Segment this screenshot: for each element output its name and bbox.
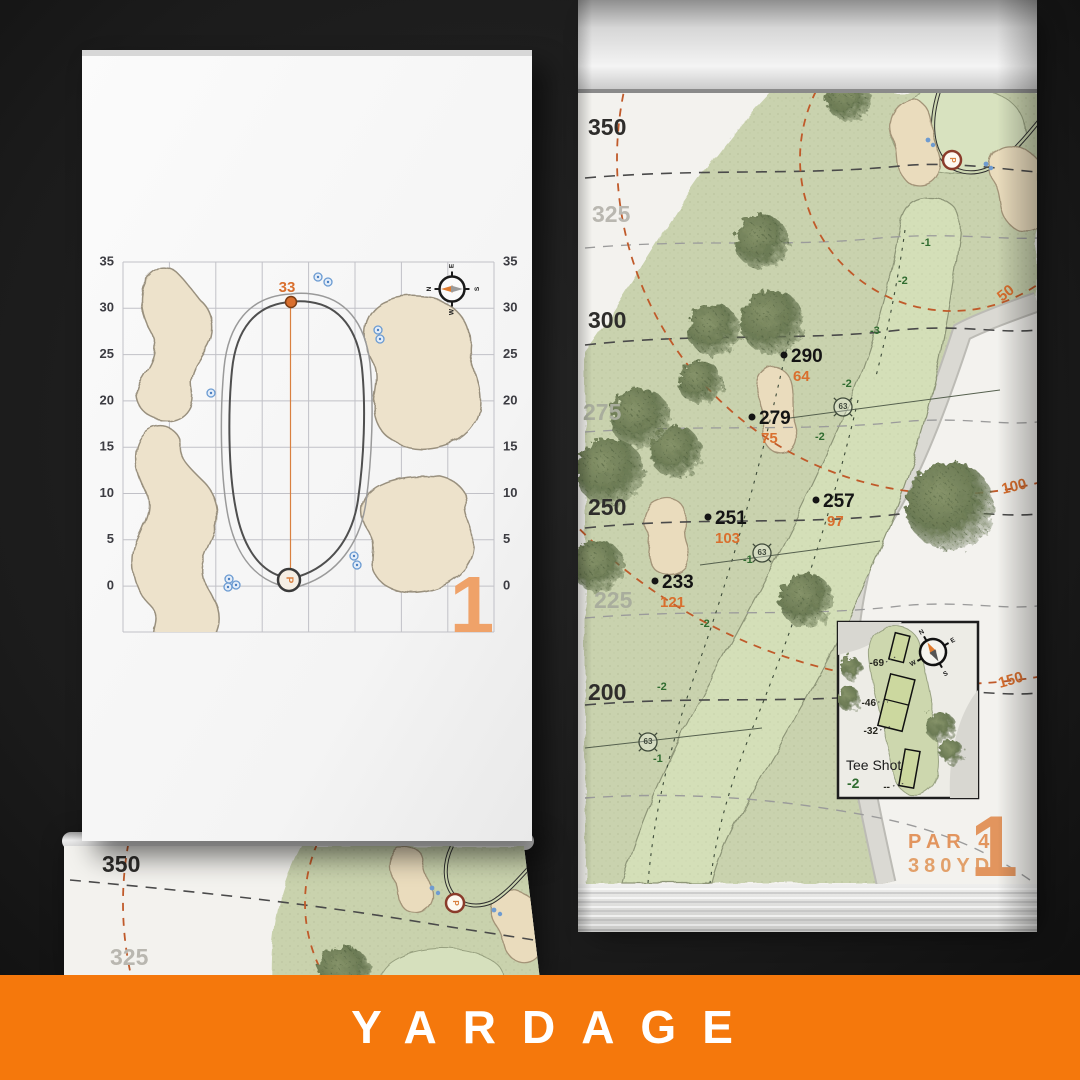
footer-title: YARDAGE <box>351 1001 759 1053</box>
svg-text:-2: -2 <box>657 681 667 693</box>
svg-text:200: 200 <box>588 679 626 705</box>
sprinkler-head-63: 63 <box>639 733 657 751</box>
svg-text:-1: -1 <box>653 753 663 765</box>
pin-depth-value: 33 <box>279 279 296 296</box>
svg-text:233: 233 <box>662 572 694 593</box>
sprinkler-head-63: 63 <box>834 398 852 416</box>
inset-tree-icon <box>840 657 862 679</box>
svg-text:0: 0 <box>503 578 510 593</box>
page-edge-shading <box>997 0 1037 932</box>
tree-icon <box>678 360 722 404</box>
page-curl-top <box>578 0 1037 92</box>
svg-text:350: 350 <box>588 114 626 140</box>
svg-text:251: 251 <box>715 508 747 529</box>
svg-text:97: 97 <box>827 513 844 530</box>
tree-icon <box>779 573 833 627</box>
spine-shading <box>578 0 592 932</box>
svg-text:300: 300 <box>588 307 626 333</box>
inset-tree-icon <box>837 687 861 711</box>
pin-symbol: P <box>948 157 957 163</box>
pin-symbol: P <box>283 577 294 584</box>
svg-text:10: 10 <box>503 485 517 500</box>
svg-text:10: 10 <box>100 485 114 500</box>
svg-text:-3: -3 <box>870 325 880 337</box>
svg-text:225: 225 <box>594 587 633 613</box>
tee-inset-title: Tee Shot <box>846 757 901 773</box>
tree-icon <box>740 290 804 354</box>
svg-text:279: 279 <box>759 408 791 429</box>
tree-icon <box>650 426 702 478</box>
pin-symbol: P <box>451 900 460 906</box>
tee-distance: -32 <box>864 726 879 737</box>
svg-text:25: 25 <box>503 346 517 361</box>
svg-text:-2: -2 <box>842 378 852 390</box>
inset-tree-icon <box>925 711 955 741</box>
tee-distance: -69 <box>870 658 885 669</box>
svg-text:-1: -1 <box>921 237 931 249</box>
svg-text:E: E <box>449 263 456 268</box>
footer-banner: YARDAGE <box>0 975 1080 1080</box>
page-top-edge <box>82 50 532 56</box>
tree-icon <box>688 304 740 356</box>
tee-distance: -- <box>883 782 890 793</box>
green-detail-book: 35 30 25 20 15 10 5 0 35 30 25 20 15 10 … <box>82 50 546 856</box>
svg-text:5: 5 <box>107 531 114 546</box>
svg-text:15: 15 <box>503 439 517 454</box>
svg-text:5: 5 <box>503 531 510 546</box>
svg-text:325: 325 <box>592 201 631 227</box>
bunker <box>644 498 689 575</box>
tree-icon <box>735 215 789 269</box>
svg-text:0: 0 <box>107 578 114 593</box>
tree-icon <box>906 462 994 550</box>
sprinkler-head-63: 63 <box>753 544 771 562</box>
svg-text:63: 63 <box>644 737 653 746</box>
svg-text:W: W <box>449 308 456 315</box>
svg-text:75: 75 <box>761 430 778 447</box>
svg-text:257: 257 <box>823 491 855 512</box>
inset-tree-icon <box>940 740 964 764</box>
front-edge-marker <box>286 297 297 308</box>
svg-text:103: 103 <box>715 530 740 547</box>
svg-text:64: 64 <box>793 368 810 385</box>
svg-text:63: 63 <box>839 402 848 411</box>
svg-text:25: 25 <box>100 346 114 361</box>
svg-text:30: 30 <box>100 300 114 315</box>
svg-text:35: 35 <box>100 253 114 268</box>
svg-text:30: 30 <box>503 300 517 315</box>
svg-text:-1: -1 <box>743 554 753 566</box>
distance-label-325: 325 <box>110 944 149 970</box>
svg-text:35: 35 <box>503 253 517 268</box>
svg-text:-2: -2 <box>898 275 908 287</box>
tee-distance: -46 <box>862 698 877 709</box>
svg-text:S: S <box>474 286 481 291</box>
poster-canvas: P 350 325 35 30 25 20 15 10 5 0 35 30 25… <box>0 0 1080 1080</box>
svg-text:121: 121 <box>660 594 685 611</box>
bunker <box>365 297 480 449</box>
svg-text:-2: -2 <box>815 431 825 443</box>
tee-inset-slope: -2 <box>847 775 860 791</box>
svg-text:63: 63 <box>758 548 767 557</box>
tee-shot-inset: -69 -46 -32 -- Tee Shot -2 N E S W <box>837 617 978 798</box>
svg-text:20: 20 <box>100 392 114 407</box>
svg-text:20: 20 <box>503 392 517 407</box>
svg-text:N: N <box>426 286 433 291</box>
hole-number: 1 <box>450 560 495 649</box>
yardage-book-poster: P 350 325 35 30 25 20 15 10 5 0 35 30 25… <box>0 0 1080 1080</box>
page-curl-crease <box>578 89 1037 93</box>
svg-text:-2: -2 <box>700 618 710 630</box>
svg-text:250: 250 <box>588 494 626 520</box>
svg-text:15: 15 <box>100 439 114 454</box>
svg-text:290: 290 <box>791 346 823 367</box>
